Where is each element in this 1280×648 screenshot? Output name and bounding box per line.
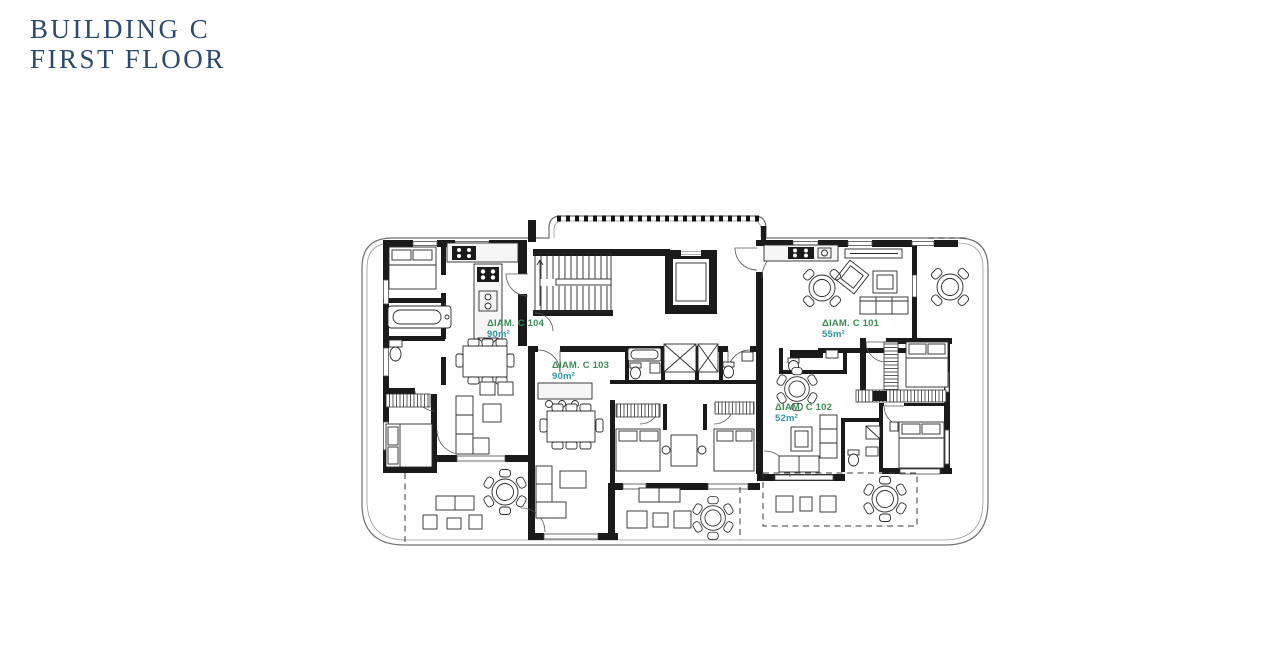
toilet	[848, 450, 859, 466]
wardrobe	[715, 402, 754, 414]
apartment-area: 90m²	[552, 371, 609, 382]
wardrobe	[386, 394, 430, 407]
bed	[616, 429, 660, 471]
kitchen-counter	[790, 350, 838, 358]
coffee-table	[480, 382, 513, 422]
round-table	[802, 268, 842, 308]
outdoor-sofa	[639, 488, 680, 502]
kitchen-counter	[856, 390, 946, 402]
bed	[899, 422, 944, 468]
apartment-name: ΔΙΑΜ. C 101	[822, 318, 879, 329]
floor-plan-drawing	[0, 0, 1280, 648]
round-table	[483, 470, 527, 515]
ventilation-shaft	[664, 344, 718, 372]
apartment-c104-furniture	[386, 243, 518, 467]
apartment-name: ΔΙΑΜ. C 103	[552, 360, 609, 371]
sink	[650, 363, 660, 373]
dining-table	[540, 404, 603, 449]
wardrobe	[884, 342, 898, 391]
apartment-label-c101: ΔΙΑΜ. C 101 55m²	[822, 318, 879, 340]
apartment-label-c103: ΔΙΑΜ. C 103 90m²	[552, 360, 609, 382]
floor-plan-page: BUILDING C FIRST FLOOR	[0, 0, 1280, 648]
shower	[866, 426, 880, 439]
desk	[662, 435, 706, 466]
sink	[742, 352, 753, 361]
apartment-area: 90m²	[487, 329, 544, 340]
bed	[906, 342, 948, 387]
apartment-name: ΔΙΑΜ. C 104	[487, 318, 544, 329]
sofa	[860, 297, 908, 314]
kitchen-counter	[447, 243, 518, 262]
dining-table	[456, 339, 514, 384]
kitchen-counter	[764, 245, 838, 261]
nightstand	[890, 422, 898, 431]
staircase	[535, 253, 611, 312]
toilet	[630, 363, 641, 379]
sink	[866, 447, 878, 456]
coffee-table	[560, 471, 586, 488]
apartment-name: ΔΙΑΜ. C 102	[775, 402, 832, 413]
toilet	[389, 340, 402, 361]
bathtub	[388, 306, 451, 328]
bathtub	[628, 348, 661, 361]
apartment-area: 52m²	[775, 413, 832, 424]
outdoor-chair	[423, 515, 482, 529]
armchair	[873, 271, 897, 293]
apartment-label-c104: ΔΙΑΜ. C 104 90m²	[487, 318, 544, 340]
bed	[386, 424, 432, 467]
bed	[389, 247, 436, 289]
apartment-area: 55m²	[822, 329, 879, 340]
outdoor-sofa	[436, 496, 474, 510]
bed	[714, 429, 754, 471]
outdoor-chair	[627, 511, 691, 528]
outdoor-chair	[776, 496, 836, 512]
wardrobe	[616, 404, 660, 417]
sofa	[779, 456, 819, 472]
elevator-shaft	[665, 249, 717, 314]
toilet	[723, 362, 734, 378]
round-table	[863, 477, 907, 522]
apartment-label-c102: ΔΙΑΜ. C 102 52m²	[775, 402, 832, 424]
round-table	[930, 267, 970, 307]
round-table	[692, 497, 734, 540]
sideboard	[845, 249, 902, 258]
coffee-table	[791, 427, 812, 451]
